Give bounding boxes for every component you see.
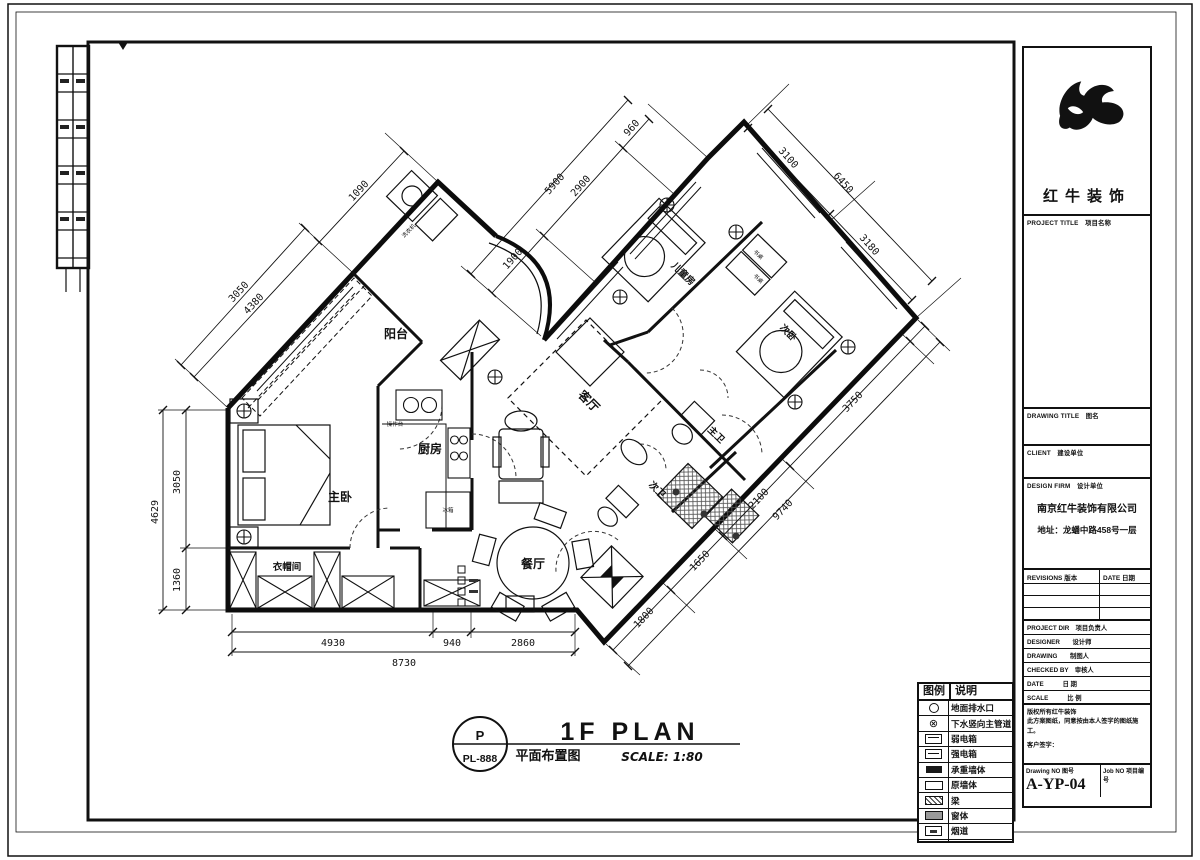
room-label-living: 客厅 [575, 386, 603, 414]
legend-row: 承重墙体 [919, 763, 1012, 778]
plan-scale: SCALE: 1:80 [621, 750, 702, 764]
legend-row: 窗体 [919, 809, 1012, 824]
legend-header-desc: 说明 [951, 684, 1012, 699]
drawing-number: A-YP-04 [1026, 776, 1098, 794]
legend-row: 地面排水口 [919, 701, 1012, 716]
window-icon [925, 811, 943, 820]
legend-label: 烟道 [949, 825, 1012, 837]
room-label-second: 次卧 [777, 322, 799, 344]
gas-pipe-icon [928, 842, 940, 843]
load-bearing-wall-icon [926, 766, 942, 773]
dim-label: 4380 [242, 292, 266, 317]
label-desk: 书桌 [752, 272, 766, 286]
dim-label: 4930 [321, 638, 345, 649]
outer-walls [228, 122, 916, 642]
revision-row [1024, 608, 1150, 621]
dim-label: 6450 [831, 171, 855, 196]
beam-icon [925, 796, 943, 805]
legend-header: 图例 说明 [919, 684, 1012, 701]
date-col-label: DATE 日期 [1100, 570, 1150, 583]
legend-label: 强电箱 [949, 748, 1012, 760]
drawing-title-field [1024, 420, 1150, 446]
designer-row: DESIGNER 设计师 [1024, 635, 1150, 649]
plan-title-en: 1F PLAN [560, 718, 699, 746]
plan-mark-number: PL-888 [463, 753, 498, 765]
flue-icon [925, 826, 942, 836]
job-no-label: Job NO 项目编号 [1103, 766, 1148, 784]
date-row: DATE 日 期 [1024, 677, 1150, 691]
legend-row: 烟道 [919, 824, 1012, 839]
design-firm-label: DESIGN FIRM 设计单位 [1024, 479, 1150, 490]
room-label-cloak: 衣帽间 [273, 561, 302, 573]
master-bed [238, 425, 330, 525]
legend-label: 承重墙体 [949, 764, 1012, 776]
dim-label: 2860 [511, 638, 535, 649]
revisions-header: REVISIONS 版本 DATE 日期 [1024, 570, 1150, 584]
client-field [1024, 457, 1150, 479]
company-logo-bull-icon [1039, 66, 1135, 162]
revision-row [1024, 584, 1150, 596]
dim-label: 9740 [771, 498, 796, 523]
firm-address: 地址：龙蟠中路458号一层 [1024, 524, 1150, 536]
company-name: 红牛装饰 [1024, 185, 1150, 206]
revision-strip [57, 46, 89, 292]
dim-label: 940 [443, 638, 461, 649]
copyright-note: 版权所有红牛装饰 此方案图纸，同意按由本人签字的图纸施工。 客户签字： [1024, 705, 1150, 765]
title-block: 红牛装饰 PROJECT TITLE 项目名称 DRAWING TITLE 图名… [1022, 46, 1152, 808]
project-dir-row: PROJECT DIR 项目负责人 [1024, 621, 1150, 635]
legend-label: 燃气管道 [949, 841, 1012, 843]
legend-label: 窗体 [949, 810, 1012, 822]
design-firm-field: 南京红牛装饰有限公司 地址：龙蟠中路458号一层 [1024, 500, 1150, 570]
cloak-wardrobes [230, 552, 480, 608]
dim-label: 3050 [172, 470, 183, 494]
logo-section: 红牛装饰 [1024, 48, 1150, 216]
dimension-labels: 3050 1360 4629 4380 1090 3050 1900 2900 … [150, 118, 881, 669]
revisions-label: REVISIONS 版本 [1024, 570, 1100, 583]
label-fridge: 冰箱 [442, 506, 454, 514]
project-title-field [1024, 227, 1150, 409]
label-counter: 操作台 [387, 420, 404, 428]
dim-label: 8730 [392, 658, 416, 669]
toilet [592, 485, 639, 532]
plan-title-group: P PL-888 1F PLAN 平面布置图 SCALE: 1:80 [453, 717, 740, 771]
dim-label: 4629 [150, 500, 161, 524]
legend-row: 梁 [919, 793, 1012, 808]
firm-name: 南京红牛装饰有限公司 [1024, 500, 1150, 515]
legend-row: 强电箱 [919, 747, 1012, 762]
original-wall-icon [925, 781, 943, 790]
floor-plan-canvas: 3050 1360 4629 4380 1090 3050 1900 2900 … [0, 0, 1200, 860]
legend-row: 燃气管道 [919, 840, 1012, 843]
room-label-master: 主卧 [328, 489, 352, 504]
kitchen-fixtures [382, 390, 470, 528]
legend-table: 图例 说明 地面排水口 ⊗ 下水竖向主管道 弱电箱 强电箱 承重墙体 原墙体 梁… [917, 682, 1014, 843]
legend-row: 弱电箱 [919, 732, 1012, 747]
dim-label: 2900 [569, 174, 593, 199]
dim-label: 960 [622, 118, 642, 139]
room-label-kitchen: 厨房 [418, 441, 442, 456]
checked-by-row: CHECKED BY 审核人 [1024, 663, 1150, 677]
room-label-kids: 儿童房 [668, 259, 698, 288]
revision-row [1024, 596, 1150, 608]
living-table [556, 318, 624, 386]
legend-label: 梁 [949, 795, 1012, 807]
legend-label: 地面排水口 [949, 702, 1012, 714]
floor-drain-icon [929, 703, 939, 713]
client-label: CLIENT 建设单位 [1024, 446, 1150, 457]
room-label-balcony: 阳台 [384, 326, 408, 341]
plan-mark: P [476, 728, 485, 743]
legend-header-symbol: 图例 [919, 684, 951, 699]
note-line: 此方案图纸，同意按由本人签字的图纸施工。 [1027, 717, 1147, 736]
legend-row: 原墙体 [919, 778, 1012, 793]
furniture [230, 171, 855, 622]
legend-row: ⊗ 下水竖向主管道 [919, 716, 1012, 731]
legend-label: 原墙体 [949, 779, 1012, 791]
room-label-dining: 餐厅 [521, 556, 545, 571]
scale-row: SCALE 比 例 [1024, 691, 1150, 705]
office-chair [493, 411, 549, 503]
door-arcs [350, 308, 762, 572]
project-title-label: PROJECT TITLE 项目名称 [1024, 216, 1150, 227]
plan-title-cn: 平面布置图 [515, 748, 580, 763]
frame-tick-marker [118, 42, 128, 50]
main-drain-pipe-icon: ⊗ [929, 719, 938, 729]
weak-current-box-icon [925, 734, 942, 744]
washing-machine [387, 171, 458, 241]
legend-label: 弱电箱 [949, 733, 1012, 745]
label-desk: 书桌 [752, 248, 766, 262]
drawing-title-label: DRAWING TITLE 图名 [1024, 409, 1150, 420]
strong-current-box-icon [925, 749, 942, 759]
drawing-no-label: Drawing NO 图号 [1026, 766, 1098, 775]
note-line: 客户签字： [1027, 741, 1147, 750]
dim-label: 1090 [347, 179, 371, 204]
second-bed [736, 291, 842, 397]
entry-cabinet [581, 546, 643, 608]
desks [726, 234, 787, 295]
note-line: 版权所有红牛装饰 [1027, 708, 1147, 717]
dim-label: 1360 [172, 568, 183, 592]
legend-label: 下水竖向主管道 [949, 718, 1012, 730]
dim-label: 5900 [543, 172, 567, 197]
drawing-sheet: 3050 1360 4629 4380 1090 3050 1900 2900 … [0, 0, 1200, 860]
drawing-number-section: Drawing NO 图号 A-YP-04 Job NO 项目编号 [1024, 765, 1150, 797]
drawing-row: DRAWING 制图人 [1024, 649, 1150, 663]
